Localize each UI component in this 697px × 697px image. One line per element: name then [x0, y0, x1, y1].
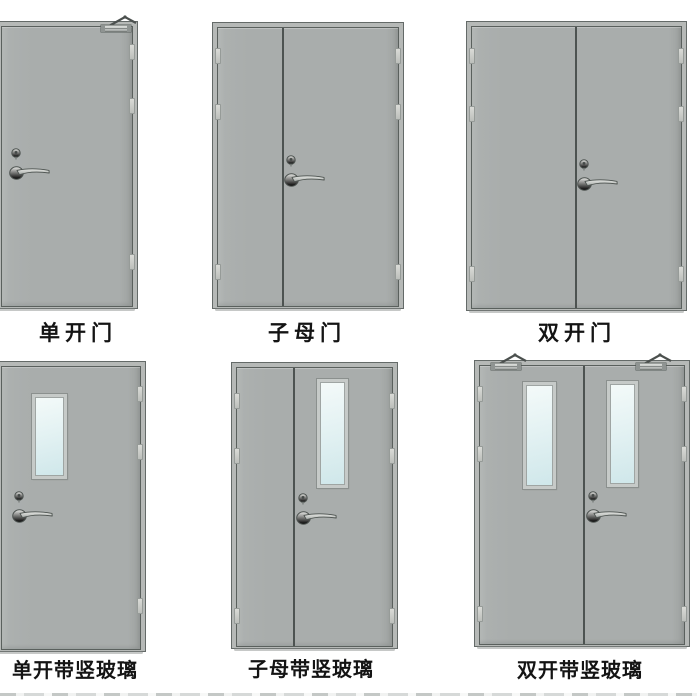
- hinge: [395, 264, 401, 280]
- lever-handle: [304, 514, 336, 520]
- hinge: [469, 266, 475, 282]
- hinge: [215, 48, 221, 64]
- hinge: [129, 254, 135, 270]
- door-leaves: [471, 26, 682, 309]
- keyhole-tail: [583, 168, 585, 171]
- door-leaves: [236, 367, 393, 647]
- hinge: [389, 448, 395, 464]
- door-frame: [474, 360, 690, 647]
- door-label: 双开门: [538, 317, 616, 347]
- lever-handle: [292, 176, 324, 182]
- door-label: 单开带竖玻璃: [12, 654, 138, 683]
- door-label: 双开带竖玻璃: [517, 654, 643, 683]
- hinge: [137, 386, 143, 402]
- hinge: [681, 386, 687, 402]
- keyhole-tail: [592, 500, 594, 503]
- keyhole-tail: [302, 502, 304, 505]
- glass-panel: [317, 379, 348, 488]
- scan-artifact-line: [0, 693, 697, 696]
- glass-panel: [523, 382, 556, 489]
- lock-and-handle: [9, 148, 53, 182]
- keyhole: [15, 151, 18, 154]
- keyhole-tail: [290, 164, 292, 167]
- hinge: [389, 393, 395, 409]
- hinge: [477, 606, 483, 622]
- door-leaf: [1, 26, 133, 307]
- hinge: [477, 386, 483, 402]
- door-frame: [466, 21, 687, 311]
- door-closer: [490, 351, 534, 373]
- hinge: [137, 598, 143, 614]
- lever-handle: [585, 180, 617, 186]
- hinge: [681, 606, 687, 622]
- door-frame: [0, 21, 138, 309]
- keyhole-tail: [18, 500, 20, 503]
- door-frame: [212, 22, 404, 309]
- hinge: [678, 266, 684, 282]
- keyhole: [592, 494, 595, 497]
- lever-handle: [594, 512, 626, 518]
- hinge: [477, 446, 483, 462]
- hinge: [137, 444, 143, 460]
- fire-door-catalog: 单开门 子母门: [0, 0, 697, 697]
- lock-and-handle: [296, 493, 340, 527]
- hinge: [395, 104, 401, 120]
- hinge: [129, 98, 135, 114]
- door-label: 单开门: [39, 317, 117, 347]
- hinge: [234, 448, 240, 464]
- hinge: [469, 48, 475, 64]
- door-closer: [635, 351, 679, 373]
- door-frame: [0, 361, 146, 652]
- keyhole: [290, 158, 293, 161]
- leaf-divider: [293, 368, 295, 646]
- lock-and-handle: [12, 491, 56, 525]
- door-leaf: [1, 366, 141, 650]
- hinge: [469, 106, 475, 122]
- door-leaves: [217, 27, 399, 307]
- hinge: [129, 44, 135, 60]
- hinge: [389, 608, 395, 624]
- glass-panel: [32, 394, 67, 479]
- hinge: [234, 393, 240, 409]
- keyhole: [18, 494, 21, 497]
- hinge: [678, 48, 684, 64]
- lock-and-handle: [577, 159, 621, 193]
- door-closer: [100, 13, 144, 35]
- keyhole: [302, 496, 305, 499]
- lever-handle: [20, 512, 52, 518]
- hinge: [681, 446, 687, 462]
- door-label: 子母门: [268, 317, 346, 347]
- door-label: 子母带竖玻璃: [248, 653, 374, 682]
- hinge: [215, 104, 221, 120]
- lever-handle: [17, 169, 49, 175]
- hinge: [678, 106, 684, 122]
- hinge: [234, 608, 240, 624]
- lock-and-handle: [586, 491, 630, 525]
- leaf-divider: [583, 366, 585, 644]
- lock-and-handle: [284, 155, 328, 189]
- hinge: [215, 264, 221, 280]
- hinge: [395, 48, 401, 64]
- keyhole: [583, 162, 586, 165]
- door-frame: [231, 362, 398, 649]
- keyhole-tail: [15, 157, 17, 160]
- glass-panel: [607, 381, 638, 487]
- door-leaves: [479, 365, 685, 645]
